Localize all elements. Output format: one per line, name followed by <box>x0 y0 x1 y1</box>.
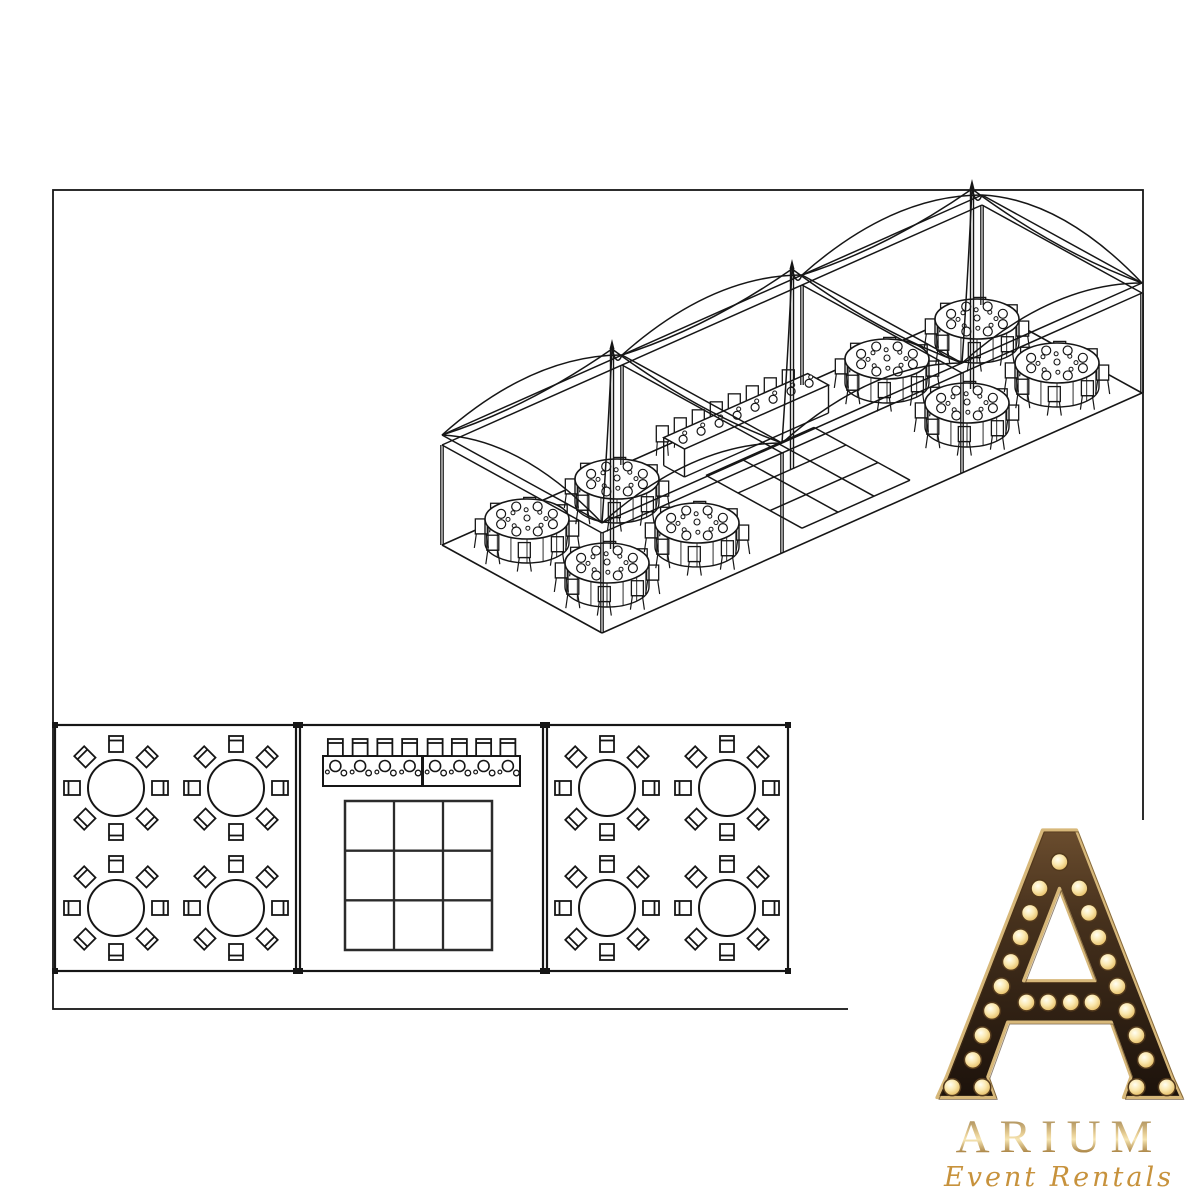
panel-connector-mark <box>297 722 303 728</box>
marquee-letter-A-icon: ARIUM Event Rentals <box>848 820 1200 1200</box>
chair <box>402 739 417 756</box>
chair <box>137 809 158 830</box>
chair <box>229 736 243 752</box>
chair <box>229 856 243 872</box>
chair <box>64 781 80 795</box>
chair <box>109 944 123 960</box>
chair <box>748 866 769 887</box>
chair <box>628 809 649 830</box>
brand-name: ARIUM <box>956 1111 1163 1163</box>
chair <box>555 781 571 795</box>
chair <box>452 739 467 756</box>
chair <box>685 866 706 887</box>
round-table <box>64 856 168 960</box>
light-bulb <box>1040 994 1057 1011</box>
chair <box>194 809 215 830</box>
light-bulb <box>1090 929 1107 946</box>
light-bulb <box>974 1027 991 1044</box>
chair <box>748 746 769 767</box>
light-bulb <box>1138 1051 1155 1068</box>
chair <box>257 746 278 767</box>
light-bulb <box>1128 1027 1145 1044</box>
dance-floor <box>345 801 492 950</box>
light-bulb <box>1062 994 1079 1011</box>
chair <box>353 739 368 756</box>
light-bulb <box>944 1079 961 1096</box>
chair <box>74 746 95 767</box>
arium-logo: ARIUM Event Rentals <box>848 820 1200 1200</box>
chair <box>74 866 95 887</box>
chair <box>675 901 691 915</box>
light-bulb <box>1003 953 1020 970</box>
light-bulb <box>1031 880 1048 897</box>
iso-chair <box>1047 387 1061 416</box>
chair <box>565 866 586 887</box>
chair <box>565 929 586 950</box>
floor-plan-view <box>52 722 791 974</box>
light-bulb <box>1022 904 1039 921</box>
chair <box>565 746 586 767</box>
chair <box>272 901 288 915</box>
panel-connector-mark <box>785 722 791 728</box>
light-bulb <box>1158 1079 1175 1096</box>
chair <box>720 856 734 872</box>
light-bulb <box>1018 994 1035 1011</box>
iso-round-table <box>474 497 579 571</box>
round-table <box>184 856 288 960</box>
chair <box>377 739 392 756</box>
chair <box>328 739 343 756</box>
iso-chair <box>597 587 611 616</box>
chair <box>257 866 278 887</box>
light-bulb <box>1109 978 1126 995</box>
iso-chair <box>720 541 734 570</box>
head-table <box>423 739 520 786</box>
chair <box>152 781 168 795</box>
light-bulb <box>1012 929 1029 946</box>
chair <box>748 809 769 830</box>
round-table <box>675 856 779 960</box>
panel-connector-mark <box>297 968 303 974</box>
chair <box>600 824 614 840</box>
chair <box>229 944 243 960</box>
iso-round-table <box>834 337 939 411</box>
chair <box>74 929 95 950</box>
head-table <box>323 739 422 786</box>
iso-chair <box>517 543 531 572</box>
chair <box>643 781 659 795</box>
iso-chair <box>550 537 564 566</box>
chair <box>628 929 649 950</box>
round-table <box>555 856 659 960</box>
chair <box>184 901 200 915</box>
chair <box>685 746 706 767</box>
chair <box>763 781 779 795</box>
event-layout-canvas: ARIUM Event Rentals <box>0 0 1200 1200</box>
iso-round-table <box>644 501 749 575</box>
iso-chair <box>957 427 971 456</box>
iso-chair <box>656 426 668 456</box>
chair <box>628 746 649 767</box>
light-bulb <box>983 1002 1000 1019</box>
light-bulb <box>974 1079 991 1096</box>
chair <box>137 929 158 950</box>
chair <box>763 901 779 915</box>
brand-tagline: Event Rentals <box>943 1162 1174 1193</box>
panel-connector-mark <box>544 722 550 728</box>
chair <box>720 824 734 840</box>
light-bulb <box>1080 904 1097 921</box>
chair <box>137 746 158 767</box>
light-bulb <box>1099 953 1116 970</box>
panel-connector-mark <box>544 968 550 974</box>
chair <box>109 736 123 752</box>
chair <box>109 824 123 840</box>
chair <box>194 866 215 887</box>
light-bulb <box>1071 880 1088 897</box>
chair <box>675 781 691 795</box>
chair <box>500 739 515 756</box>
chair <box>184 781 200 795</box>
chair <box>109 856 123 872</box>
panel-connector-mark <box>785 968 791 974</box>
chair <box>74 809 95 830</box>
panel-connector-mark <box>52 722 58 728</box>
iso-chair <box>630 581 644 610</box>
iso-chair <box>990 421 1004 450</box>
chair <box>628 866 649 887</box>
chair <box>137 866 158 887</box>
chair <box>720 944 734 960</box>
chair <box>229 824 243 840</box>
light-bulb <box>993 978 1010 995</box>
chair <box>643 901 659 915</box>
chair <box>600 856 614 872</box>
round-table <box>184 736 288 840</box>
chair <box>600 736 614 752</box>
chair <box>194 746 215 767</box>
panel-connector-mark <box>52 968 58 974</box>
round-table <box>675 736 779 840</box>
chair <box>428 739 443 756</box>
chair <box>64 901 80 915</box>
light-bulb <box>1084 994 1101 1011</box>
iso-round-table <box>914 381 1019 455</box>
chair <box>748 929 769 950</box>
chair <box>257 809 278 830</box>
light-bulb <box>964 1051 981 1068</box>
light-bulb <box>1128 1079 1145 1096</box>
round-table <box>64 736 168 840</box>
chair <box>257 929 278 950</box>
chair <box>565 809 586 830</box>
chair <box>600 944 614 960</box>
chair <box>194 929 215 950</box>
iso-round-table <box>554 541 659 615</box>
chair <box>152 901 168 915</box>
light-bulb <box>1119 1002 1136 1019</box>
chair <box>720 736 734 752</box>
chair <box>272 781 288 795</box>
iso-round-table <box>1004 341 1109 415</box>
chair <box>685 809 706 830</box>
isometric-tent-view <box>441 179 1143 633</box>
iso-chair <box>687 547 701 576</box>
light-bulb <box>1051 854 1068 871</box>
chair <box>685 929 706 950</box>
round-table <box>555 736 659 840</box>
iso-chair <box>1080 381 1094 410</box>
chair <box>555 901 571 915</box>
chair <box>476 739 491 756</box>
